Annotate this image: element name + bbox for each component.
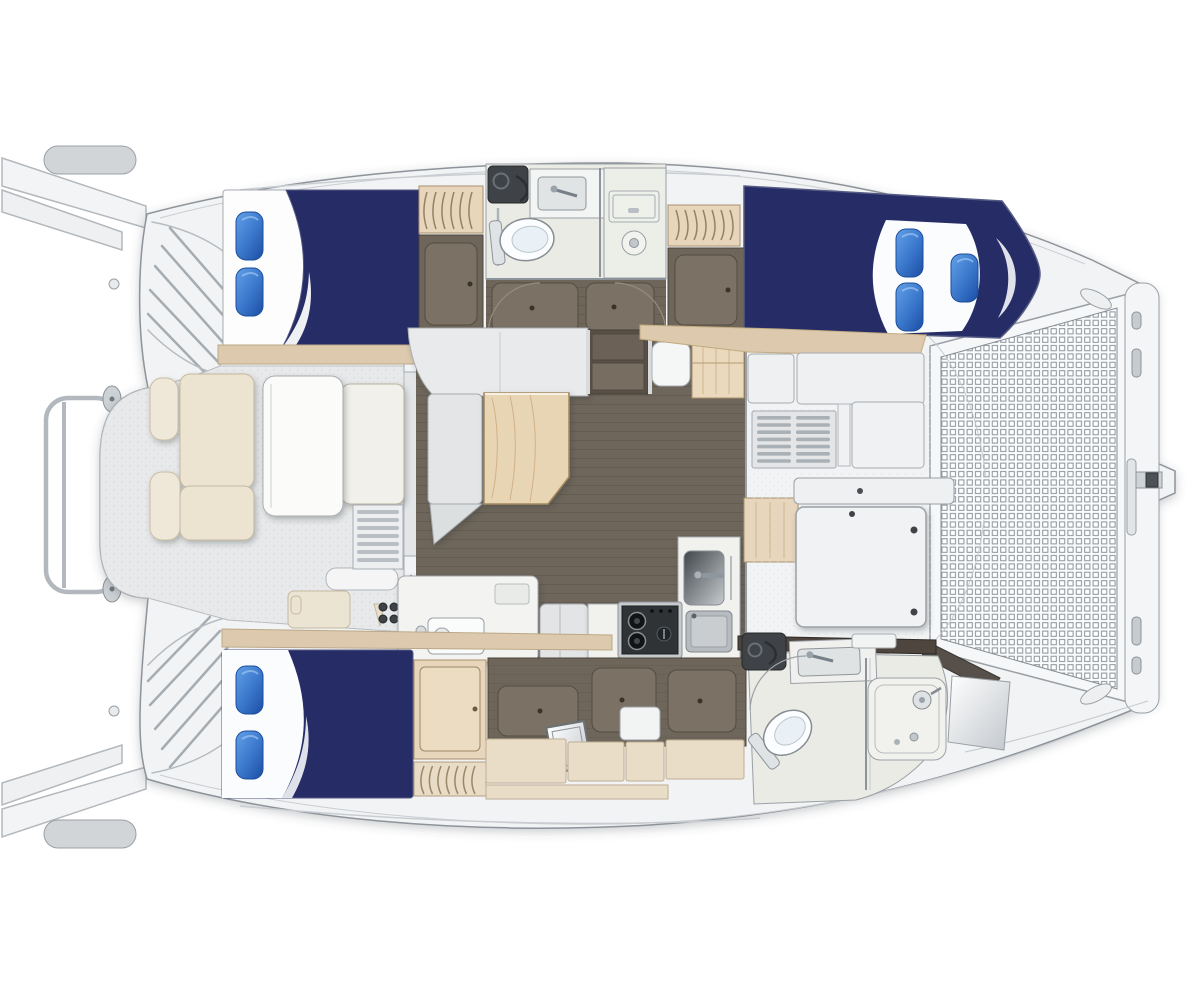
- shower-pan: [868, 678, 946, 760]
- port-stern-boarding-steps: [2, 146, 146, 250]
- sink-basin: [538, 177, 586, 210]
- starboard-stern-boarding-steps: [2, 745, 146, 848]
- hatch-latch: [857, 488, 863, 494]
- beam-fitting: [1132, 349, 1141, 377]
- faucet-base: [694, 571, 702, 579]
- anchor-roller: [1146, 473, 1158, 487]
- pillow: [951, 254, 978, 302]
- kick-board: [486, 785, 668, 799]
- shower-floor: [604, 168, 666, 278]
- bowsprit-plate: [1127, 459, 1136, 535]
- starboard-louver-vent: [414, 762, 486, 796]
- wardrobe-knob: [473, 707, 478, 712]
- burner-center: [634, 638, 640, 644]
- deck-louver-vent: [752, 411, 836, 468]
- catamaran-floor-plan: [0, 0, 1200, 993]
- lower-cabinet: [666, 740, 744, 779]
- sliding-door-track: [404, 370, 418, 558]
- locker-knob: [612, 305, 617, 310]
- pillow: [236, 731, 263, 779]
- port-wardrobe-aft: [419, 186, 483, 233]
- prep-sink-inner: [691, 616, 727, 647]
- floor-plan-canvas: [0, 0, 1200, 993]
- stove: [618, 602, 682, 658]
- trampoline-mesh: [941, 308, 1117, 689]
- stove-button: [659, 609, 663, 613]
- sink-faucet: [700, 573, 724, 578]
- counter-tray: [495, 584, 529, 604]
- settee-back-cushion: [408, 328, 588, 396]
- bow-locker-lid: [948, 676, 1010, 750]
- wardrobe-door: [420, 667, 480, 751]
- hatch-hinge: [911, 609, 918, 616]
- rail-bolt: [110, 397, 115, 402]
- starboard-dresser-storage: [486, 658, 746, 799]
- transom-fitting: [109, 706, 119, 716]
- saloon-table: [484, 393, 569, 504]
- shelf-bracket: [852, 634, 896, 648]
- port-wardrobe-forward: [668, 205, 740, 246]
- step-locker: [492, 283, 578, 333]
- cockpit-louver-steps: [353, 505, 403, 569]
- berth-foot-shelf: [218, 345, 420, 364]
- settee-bolster: [150, 472, 180, 540]
- shower-knob: [894, 739, 900, 745]
- port-forward-cabin: [744, 186, 1040, 338]
- stove-button: [668, 609, 672, 613]
- boarding-step-pad: [44, 820, 136, 848]
- lower-cabinet: [486, 739, 566, 783]
- faucet-base: [551, 186, 558, 193]
- hatch-hinge: [911, 527, 918, 534]
- step-locker: [586, 283, 654, 331]
- storage-box: [620, 707, 660, 740]
- deck-locker: [748, 354, 794, 403]
- shower-head-center: [919, 697, 925, 703]
- shower-drain: [910, 733, 918, 741]
- settee-bolster: [150, 378, 178, 440]
- lower-cabinet: [568, 742, 624, 781]
- beam-fitting: [1132, 617, 1141, 645]
- settee-cushion: [180, 486, 254, 540]
- saloon: [398, 328, 798, 662]
- shower-drain: [630, 239, 639, 248]
- port-aft-cabin: [218, 190, 420, 364]
- starboard-aft-cabin: [222, 650, 413, 798]
- rail-bolt: [110, 587, 115, 592]
- boarding-step-pad: [44, 146, 136, 174]
- port-dresser-forward: [668, 248, 744, 332]
- foredeck-large-hatch: [796, 507, 926, 627]
- deck-locker: [797, 353, 924, 404]
- settee-side-cushion: [428, 394, 482, 504]
- cabinet-knob: [726, 288, 731, 293]
- deck-hatch: [609, 191, 659, 222]
- pillow: [236, 268, 263, 316]
- panel-knob: [538, 709, 543, 714]
- sheet-area: [222, 650, 304, 798]
- transom-fitting: [109, 279, 119, 289]
- deck-module: [852, 402, 924, 468]
- starboard-hull-steps-down: [540, 604, 588, 662]
- beam-fitting: [1132, 657, 1141, 674]
- settee-cushion: [180, 374, 254, 488]
- port-head: [486, 164, 666, 279]
- deck-divider: [838, 404, 850, 466]
- panel-knob: [620, 698, 625, 703]
- cabinet-knob: [468, 282, 473, 287]
- forward-crossbeam: [1125, 283, 1162, 713]
- step: [592, 334, 644, 360]
- port-dresser-aft: [419, 235, 483, 332]
- cockpit-table: [263, 376, 343, 516]
- starboard-wardrobe: [414, 660, 486, 759]
- locker-knob: [530, 306, 535, 311]
- step-rail: [586, 330, 590, 394]
- prep-faucet: [692, 614, 697, 619]
- pillow: [896, 283, 923, 331]
- starboard-hull-interior: [222, 629, 948, 823]
- sink-basin: [798, 647, 861, 676]
- pillow: [896, 229, 923, 277]
- step: [592, 363, 644, 390]
- stove-button: [650, 609, 654, 613]
- settee-seat: [342, 384, 404, 504]
- pillow: [236, 666, 263, 714]
- panel-knob: [698, 699, 703, 704]
- cockpit-step-module: [326, 568, 398, 590]
- pillow: [236, 212, 263, 260]
- hatch-handle: [628, 208, 639, 213]
- deck-hatch-sill: [794, 478, 954, 504]
- shower-stall: [868, 678, 946, 760]
- nav-seat: [652, 342, 690, 386]
- beam-fitting: [1132, 312, 1141, 329]
- burner-center: [634, 618, 640, 624]
- bow-trampoline: [930, 294, 1128, 702]
- lower-cabinet: [626, 742, 664, 781]
- hatch-hinge: [849, 511, 855, 517]
